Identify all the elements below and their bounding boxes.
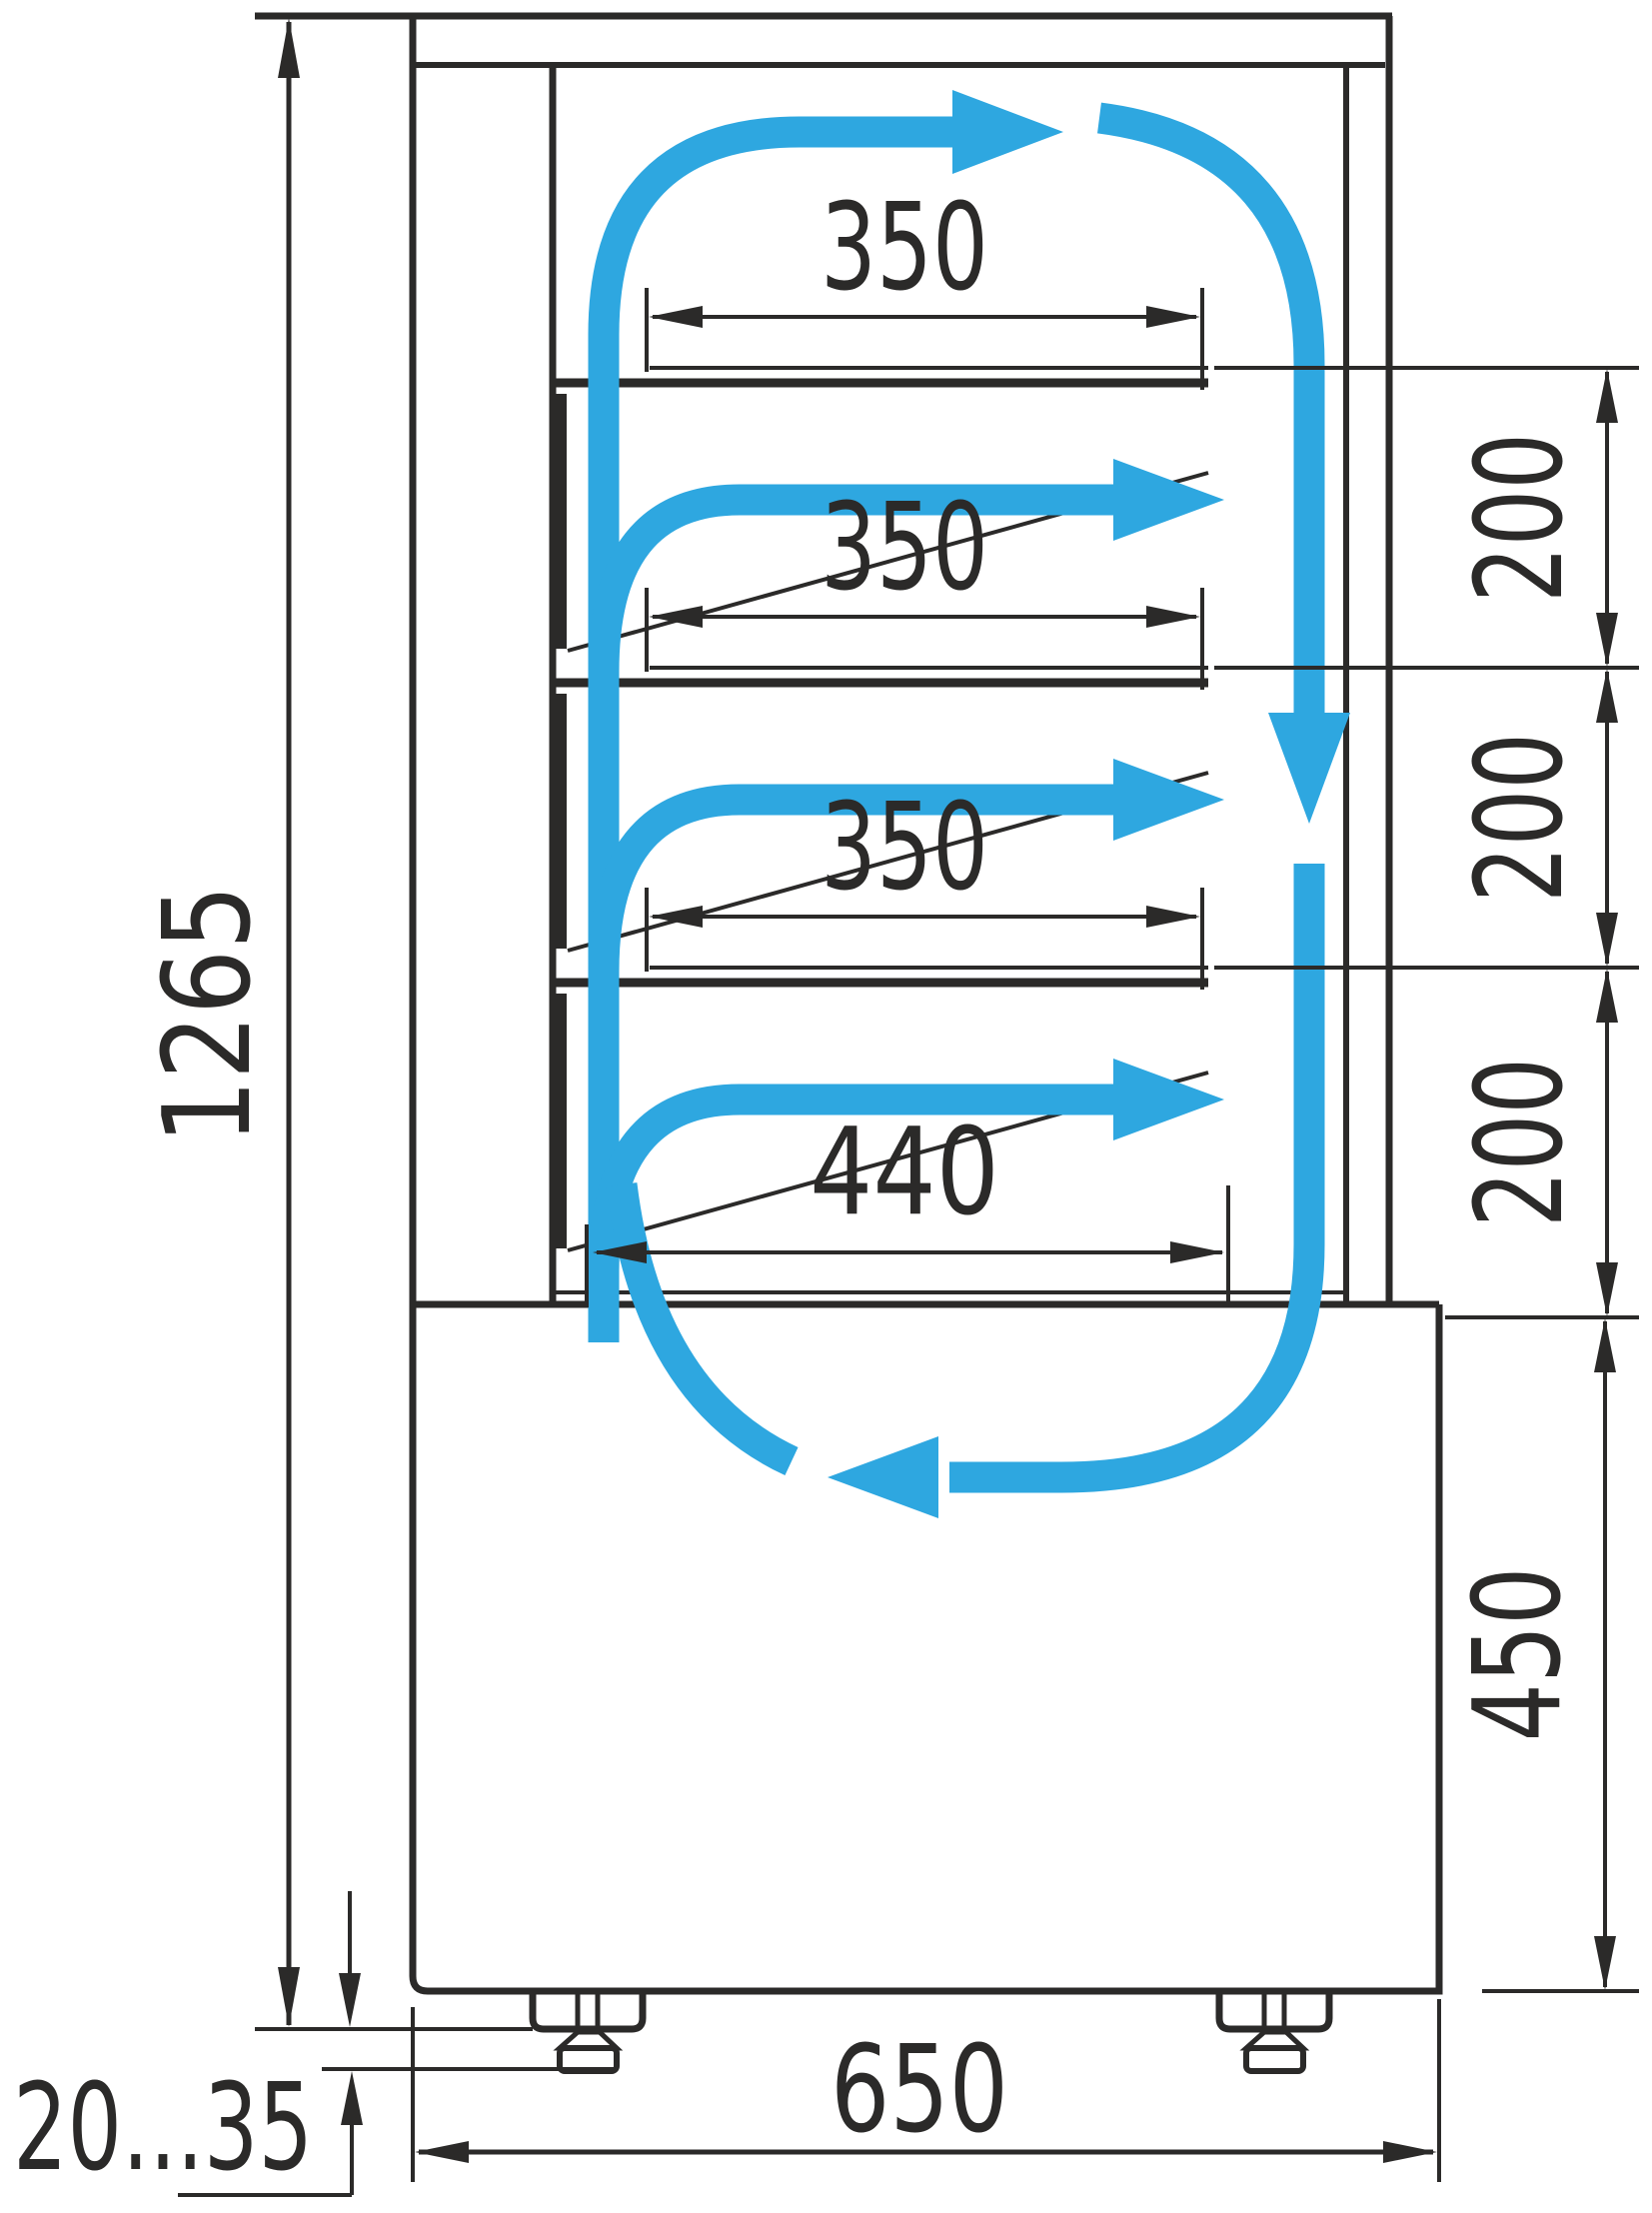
arrow-up-icon: [1596, 969, 1618, 1023]
arrow-up-icon: [1596, 369, 1618, 423]
airflow-top-arrow-icon: [952, 90, 1063, 174]
dim-overall-height: 1265: [139, 18, 300, 2027]
arrow-down-icon: [1596, 913, 1618, 967]
arrow-up-icon: [341, 2071, 363, 2125]
dim-gap3-label: 200: [1451, 1058, 1590, 1227]
dim-gap2-label: 200: [1451, 733, 1590, 903]
leg-right-screw: [1264, 1993, 1284, 2027]
arrow-left-icon: [649, 306, 703, 328]
leg-left-flange: [533, 1991, 643, 2029]
dim-shelf1-label: 350: [821, 179, 988, 318]
airflow-base-rise-arc: [622, 1184, 792, 1461]
leg-left-screw: [578, 1993, 598, 2027]
arrow-down-icon: [278, 1967, 300, 2027]
airflow-down-arrow-icon: [1268, 713, 1350, 824]
dim-leg-range: 20...35: [13, 1891, 363, 2198]
dim-leg-range-label: 20...35: [13, 2059, 313, 2198]
arrow-right-icon: [1146, 306, 1200, 328]
dim-gap1-label: 200: [1451, 433, 1590, 603]
dim-base-depth-label: 650: [830, 2021, 1008, 2160]
arrow-right-icon: [1383, 2141, 1437, 2163]
arrow-up-icon: [1594, 1318, 1616, 1372]
arrow-down-icon: [1596, 613, 1618, 667]
arrow-down-icon: [1596, 1262, 1618, 1316]
arrow-down-icon: [339, 1973, 361, 2027]
airflow-left-arrow-icon: [827, 1436, 938, 1518]
dim-shelf3-label: 350: [821, 779, 988, 918]
arrow-up-icon: [1596, 669, 1618, 723]
dim-overall-height-label: 1265: [139, 885, 278, 1144]
base-outline: [413, 1304, 1439, 1991]
leg-right: [1219, 1991, 1329, 2071]
arrow-down-icon: [1594, 1936, 1616, 1990]
airflow-base-return: [949, 864, 1309, 1477]
leg-right-foot: [1246, 2048, 1303, 2071]
arrow-right-icon: [1146, 606, 1200, 628]
arrow-up-icon: [278, 18, 300, 78]
dim-bottom-shelf-depth: 440: [587, 1104, 1228, 1307]
dim-shelf-gaps: 200 200 200: [1214, 368, 1639, 1317]
display-case-diagram: 1265 350 350 350 440: [0, 0, 1652, 2213]
arrow-left-icon: [415, 2141, 469, 2163]
leg-left: [533, 1991, 643, 2071]
dim-base-height-label: 450: [1449, 1567, 1588, 1742]
dim-base-height: 450: [1449, 1318, 1639, 1991]
arrow-right-icon: [1146, 906, 1200, 928]
arrow-right-icon: [1170, 1241, 1224, 1263]
dim-shelf2-label: 350: [821, 479, 988, 618]
drawing-canvas: 1265 350 350 350 440: [0, 0, 1652, 2213]
leg-right-flange: [1219, 1991, 1329, 2029]
dim-440-label: 440: [810, 1104, 999, 1242]
dim-shelf1-depth: 350: [647, 179, 1202, 390]
